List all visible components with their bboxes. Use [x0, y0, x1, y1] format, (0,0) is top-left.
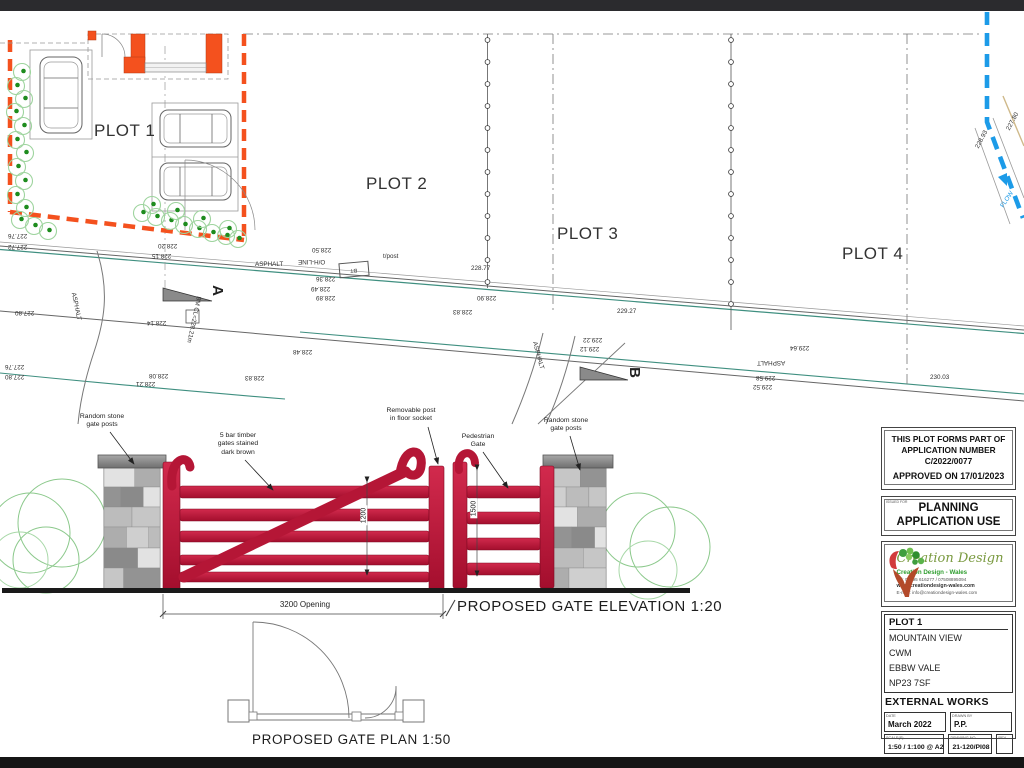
planning-use-stamp-box: ISSUED FOR PLANNING APPLICATION USE	[881, 496, 1016, 536]
field-label: DRAWING NO	[950, 736, 975, 740]
bush-right	[601, 493, 710, 599]
approval-line: C/2022/0077	[885, 456, 1012, 467]
plot-boundaries	[165, 34, 983, 388]
survey-label: 228.08	[149, 372, 168, 379]
creation-design-tree-logo	[885, 545, 927, 601]
elevation-annotation: Pedestrian Gate	[448, 433, 508, 450]
field-label: SCALE(S)	[886, 736, 904, 740]
pedestrian-gate-height-dimension: 1500	[470, 499, 477, 519]
survey-label: 228.83	[245, 374, 264, 381]
main-gate-height-dimension: 1200	[360, 506, 367, 526]
fence-post-markers	[485, 38, 733, 307]
survey-label: ASPHALT	[255, 261, 283, 268]
survey-label: 227.76	[5, 363, 24, 370]
opening-dimension: 3200 Opening	[270, 600, 340, 609]
section-marker-triangles	[163, 288, 628, 380]
survey-label: 228.20	[158, 242, 177, 249]
address-line: EBBW VALE	[889, 660, 1008, 675]
main-gate	[163, 452, 429, 590]
plot-label: PLOT 2	[366, 174, 427, 194]
elevation-annotation: 5 bar timber gates stained dark brown	[200, 432, 276, 457]
address-line: CWM	[889, 645, 1008, 660]
drawing-number-field: DRAWING NO 21-120/PI08	[948, 734, 992, 754]
survey-label: 229.64	[790, 344, 809, 351]
survey-label: 228.14	[147, 319, 166, 326]
survey-label: 229.27	[617, 308, 636, 315]
revision-field: REV	[996, 734, 1013, 754]
survey-label: 228.15	[152, 252, 171, 259]
pedestrian-gate	[453, 453, 554, 588]
field-value: 21-120/PI08	[952, 744, 989, 751]
survey-label: ASPHALT	[757, 359, 785, 366]
approval-line: THIS PLOT FORMS PART OF	[885, 434, 1012, 445]
company-logo-box: Creation Design Creation Design - Wales …	[881, 541, 1016, 607]
survey-label: 227.76	[8, 232, 27, 239]
survey-label: 228.36	[316, 275, 335, 282]
survey-label: 228.89	[316, 294, 335, 301]
scale-field: SCALE(S) 1:50 / 1:100 @ A2	[884, 734, 944, 754]
work-type-label: EXTERNAL WORKS	[884, 693, 1013, 710]
survey-label: 228.49	[311, 285, 330, 292]
stamp-line: APPLICATION USE	[885, 515, 1012, 529]
field-label: DRAWN BY	[952, 714, 972, 718]
survey-label: 230.03	[930, 374, 949, 381]
bottom-letterbox-bar	[0, 757, 1024, 768]
house-footprint	[0, 31, 228, 79]
survey-label: 229.58	[756, 374, 775, 381]
elevation-annotation: Random stone gate posts	[66, 413, 138, 430]
survey-label: 228.50	[312, 246, 331, 253]
project-info-box: PLOT 1 MOUNTAIN VIEW CWM EBBW VALE NP23 …	[881, 611, 1016, 739]
survey-label: 228.48	[293, 348, 312, 355]
stone-post-cap-right	[543, 455, 613, 468]
drawn-by-field: DRAWN BY P.P.	[950, 712, 1012, 732]
survey-label: O/H-LINE	[298, 258, 325, 265]
project-plot: PLOT 1	[889, 617, 1008, 630]
date-field: DATE March 2022	[884, 712, 946, 732]
survey-label: 229.22	[583, 336, 602, 343]
approval-line: APPLICATION NUMBER	[885, 445, 1012, 456]
elevation-title: PROPOSED GATE ELEVATION 1:20	[457, 598, 722, 615]
survey-label: 228.21	[136, 380, 155, 387]
survey-label: 229.12	[580, 345, 599, 352]
plot-label: PLOT 1	[94, 121, 155, 141]
field-label: REV	[998, 736, 1006, 740]
address-line: NP23 7SF	[889, 675, 1008, 690]
field-value: March 2022	[888, 720, 932, 729]
survey-label: 227.80	[5, 373, 24, 380]
survey-label: 227.72	[8, 243, 27, 250]
road-lines	[0, 242, 1024, 424]
plot-label: PLOT 3	[557, 224, 618, 244]
stamp-small-label: ISSUED FOR	[886, 500, 907, 504]
approval-date-line: APPROVED ON 17/01/2023	[885, 471, 1012, 481]
field-label: DATE	[886, 714, 896, 718]
project-address: PLOT 1 MOUNTAIN VIEW CWM EBBW VALE NP23 …	[884, 614, 1013, 693]
section-marker-letter: A	[209, 285, 226, 296]
gate-plan-geometry	[228, 622, 424, 722]
elevation-annotation: Removable post in floor socket	[368, 407, 454, 424]
section-marker-letter: B	[626, 367, 643, 378]
gate-elevation-geometry	[0, 427, 710, 619]
survey-label: 227.80	[15, 309, 34, 316]
field-value: P.P.	[954, 720, 967, 729]
survey-label: 228.90	[477, 294, 496, 301]
approval-stamp-box: THIS PLOT FORMS PART OF APPLICATION NUMB…	[881, 427, 1016, 490]
field-value: 1:50 / 1:100 @ A2	[888, 744, 944, 751]
elevation-annotation: Random stone gate posts	[530, 417, 602, 434]
drawing-sheet: 227.76227.72228.20228.15ASPHALTO/H-LINE2…	[0, 0, 1024, 768]
survey-label: 228.83	[453, 308, 472, 315]
bush-left	[0, 479, 106, 593]
address-line: MOUNTAIN VIEW	[889, 630, 1008, 645]
ground-line	[2, 588, 690, 593]
plot-label: PLOT 4	[842, 244, 903, 264]
bt-utility-box: BT	[338, 261, 369, 279]
survey-label: 229.52	[753, 383, 772, 390]
survey-label: t/post	[383, 253, 398, 260]
survey-label: 228.77	[471, 265, 490, 272]
removable-post	[429, 466, 444, 592]
gate-plan-title: PROPOSED GATE PLAN 1:50	[252, 732, 451, 747]
